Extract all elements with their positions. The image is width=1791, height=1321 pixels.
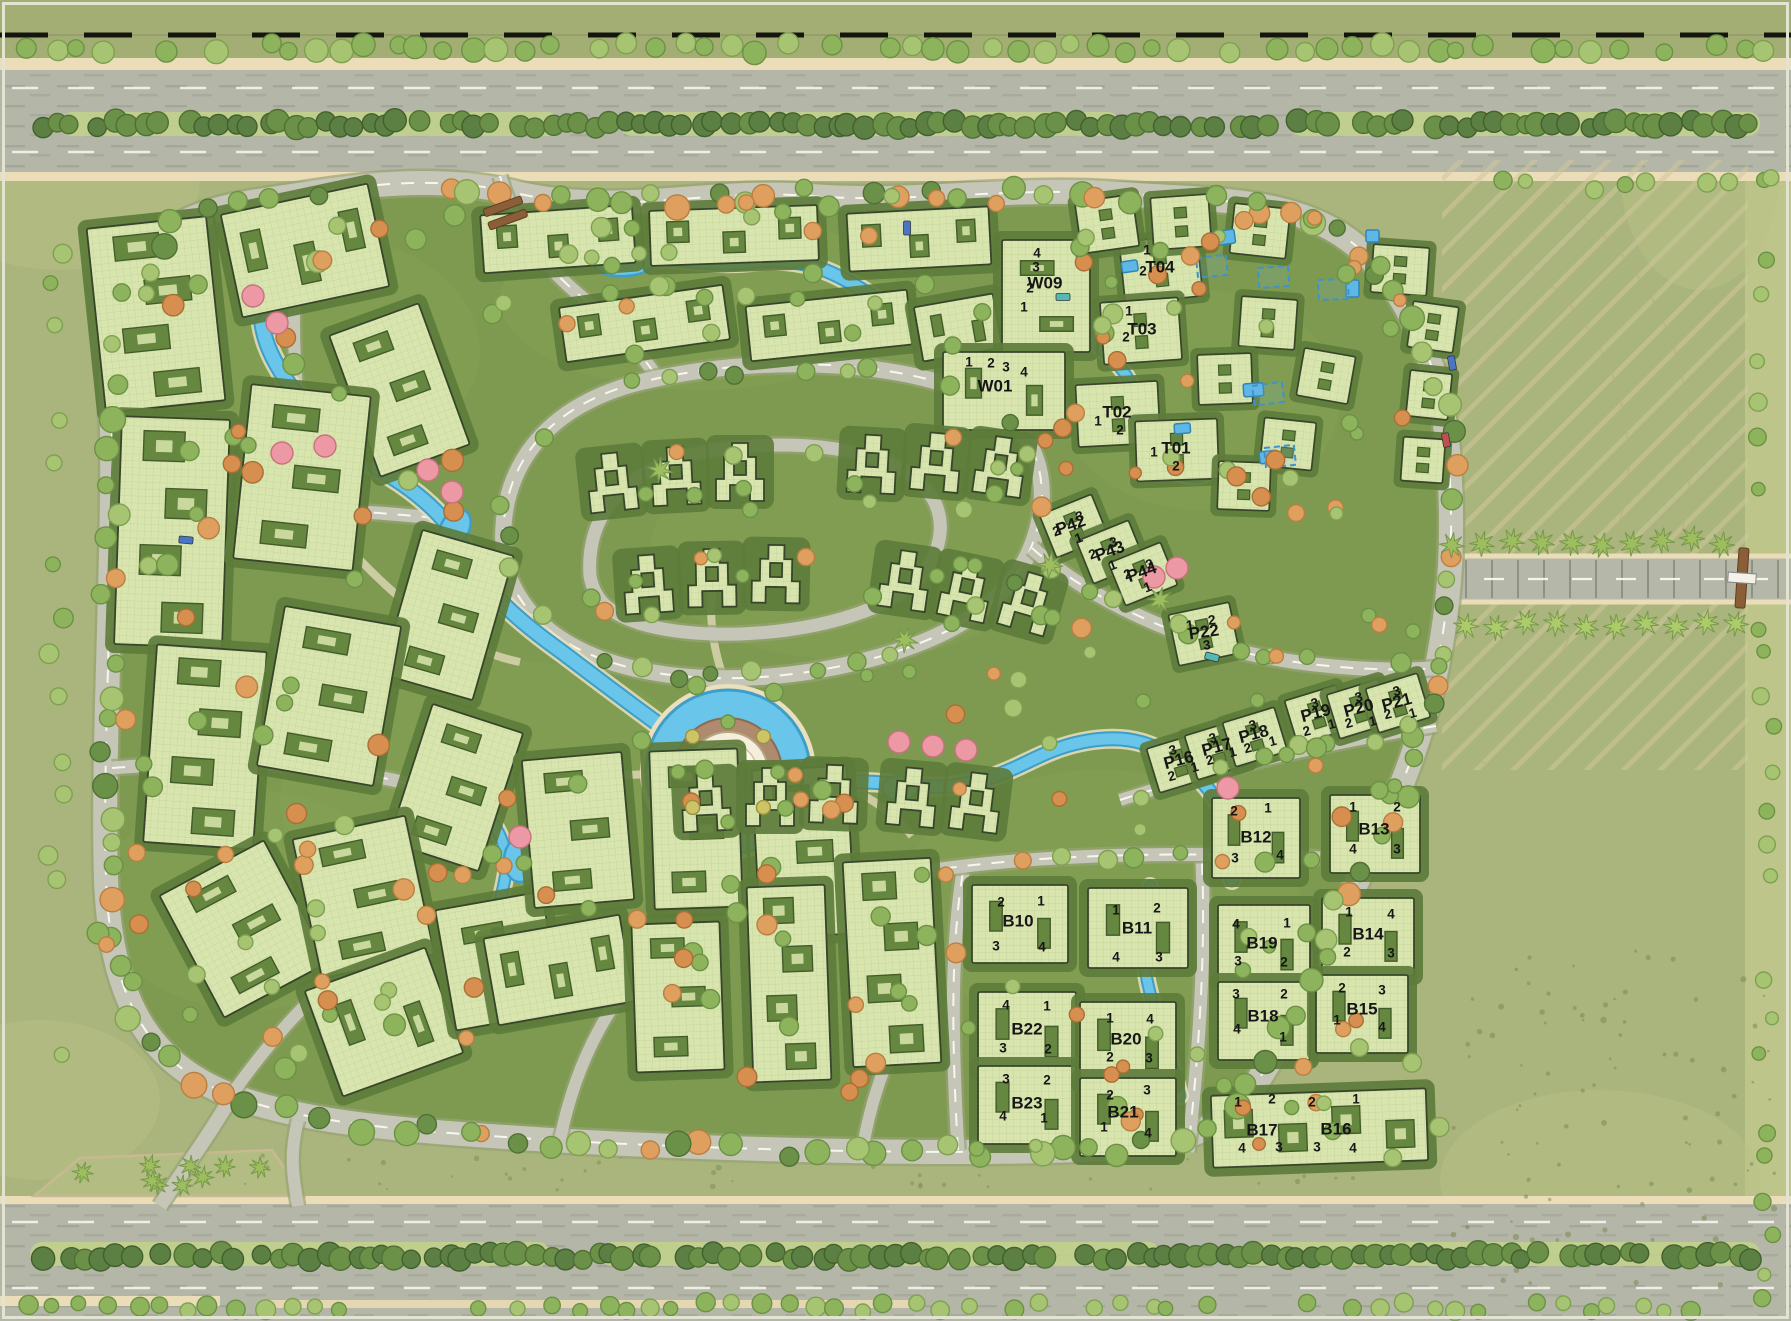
unit-number: 3 xyxy=(1143,1083,1151,1098)
unit-number: 4 xyxy=(1238,1141,1246,1156)
unit-number: 1 xyxy=(1112,903,1120,918)
svg-text:T01: T01 xyxy=(1161,438,1190,457)
unit-number: 2 xyxy=(1338,981,1346,996)
svg-text:B23: B23 xyxy=(1011,1093,1042,1112)
svg-text:T02: T02 xyxy=(1102,402,1131,421)
unit-number: 1 xyxy=(1333,1013,1341,1028)
unit-number: 1 xyxy=(1349,800,1357,815)
unit-number: 4 xyxy=(1144,1126,1152,1141)
unit-number: 2 xyxy=(1280,955,1288,970)
unit-number: 1 xyxy=(1043,999,1051,1014)
svg-text:B18: B18 xyxy=(1247,1006,1278,1025)
unit-number: 1 xyxy=(965,355,973,370)
townhouse-a-block xyxy=(938,761,1015,843)
building-footprint xyxy=(737,875,840,1091)
unit-number: 2 xyxy=(1308,1095,1316,1110)
unit-number: 1 xyxy=(1037,894,1045,909)
unit-number: 2 xyxy=(1268,1092,1276,1107)
unit-number: 2 xyxy=(1043,1073,1051,1088)
svg-text:B14: B14 xyxy=(1352,924,1384,943)
svg-text:T04: T04 xyxy=(1145,257,1175,276)
unit-number: 2 xyxy=(1393,800,1401,815)
planned-plot-outline xyxy=(1258,266,1289,288)
unit-number: 1 xyxy=(1234,1095,1242,1110)
unit-number: 3 xyxy=(1313,1140,1321,1155)
site-plan-svg: W094321W011234T0412T0312T0212T0112P42321… xyxy=(0,0,1791,1321)
unit-number: 1 xyxy=(1345,905,1353,920)
townhouse-a-block xyxy=(741,536,810,611)
planned-plot-outline xyxy=(1196,255,1228,278)
car-icon xyxy=(179,536,194,544)
svg-text:B16: B16 xyxy=(1320,1119,1351,1138)
unit-number: 3 xyxy=(1393,842,1401,857)
unit-number: 4 xyxy=(1232,917,1240,932)
svg-text:B19: B19 xyxy=(1246,933,1277,952)
svg-text:W01: W01 xyxy=(978,376,1013,395)
unit-number: 4 xyxy=(1349,1141,1357,1156)
car-icon xyxy=(1056,294,1070,301)
unit-number: 2 xyxy=(1106,1088,1114,1103)
townhouse-a-block xyxy=(799,756,870,832)
villa-footprint xyxy=(1190,346,1260,412)
car-icon xyxy=(904,221,911,235)
unit-number: 4 xyxy=(1038,940,1046,955)
unit-number: 4 xyxy=(1387,907,1395,922)
unit-number: 3 xyxy=(992,939,1000,954)
townhouse-a-block xyxy=(574,442,649,523)
unit-number: 4 xyxy=(1033,246,1041,261)
svg-text:B20: B20 xyxy=(1110,1029,1141,1048)
unit-number: 4 xyxy=(1378,1020,1386,1035)
unit-number: 2 xyxy=(997,895,1005,910)
unit-number: 2 xyxy=(1153,901,1161,916)
unit-number: 1 xyxy=(1100,1120,1108,1135)
unit-number: 3 xyxy=(1002,1072,1010,1087)
unit-number: 4 xyxy=(1002,998,1010,1013)
unit-number: 2 xyxy=(1230,804,1238,819)
unit-number: 4 xyxy=(1276,848,1284,863)
villa-footprint xyxy=(1288,340,1364,413)
swimming-pool xyxy=(1174,423,1191,434)
unit-number: 1 xyxy=(1106,1011,1114,1026)
svg-text:B12: B12 xyxy=(1240,827,1271,846)
unit-number: 2 xyxy=(1116,423,1124,438)
svg-text:B17: B17 xyxy=(1246,1120,1277,1139)
unit-number: 4 xyxy=(1020,365,1028,380)
unit-number: 2 xyxy=(1122,330,1130,345)
unit-number: 3 xyxy=(1002,360,1010,375)
townhouse-a-block xyxy=(899,422,973,502)
unit-number: 3 xyxy=(1231,851,1239,866)
unit-number: 3 xyxy=(1155,950,1163,965)
unit-number: 3 xyxy=(1145,1051,1153,1066)
townhouse-a-block xyxy=(706,435,774,509)
unit-number: 4 xyxy=(1146,1012,1154,1027)
building-footprint xyxy=(833,848,951,1076)
unit-number: 2 xyxy=(1106,1050,1114,1065)
unit-number: 1 xyxy=(1094,414,1102,429)
unit-number: 2 xyxy=(1343,945,1351,960)
svg-text:B15: B15 xyxy=(1346,999,1377,1018)
svg-text:B11: B11 xyxy=(1122,918,1152,937)
unit-number: 1 xyxy=(1264,801,1272,816)
unit-number: 4 xyxy=(999,1109,1007,1124)
svg-text:B22: B22 xyxy=(1011,1019,1042,1038)
unit-number: 3 xyxy=(999,1041,1007,1056)
unit-number: 2 xyxy=(987,356,995,371)
unit-number: 2 xyxy=(1280,987,1288,1002)
unit-number: 3 xyxy=(1378,983,1386,998)
svg-text:T03: T03 xyxy=(1127,319,1156,338)
unit-number: 2 xyxy=(1172,459,1180,474)
unit-number: 2 xyxy=(1026,281,1034,296)
svg-text:B10: B10 xyxy=(1002,911,1033,930)
unit-number: 1 xyxy=(1283,916,1291,931)
unit-number: 2 xyxy=(1044,1042,1052,1057)
unit-number: 3 xyxy=(1032,260,1040,275)
unit-number: 2 xyxy=(1139,264,1147,279)
svg-text:B21: B21 xyxy=(1107,1102,1138,1121)
swimming-pool xyxy=(1121,260,1138,273)
townhouse-a-block xyxy=(836,425,908,502)
planned-plot-outline xyxy=(1252,382,1284,406)
unit-number: 1 xyxy=(1143,243,1151,258)
unit-number: 3 xyxy=(1234,954,1242,969)
townhouse-a-block xyxy=(875,757,949,837)
unit-number: 1 xyxy=(1279,1030,1287,1045)
unit-number: 3 xyxy=(1387,946,1395,961)
unit-number: 4 xyxy=(1349,842,1357,857)
unit-number: 4 xyxy=(1233,1022,1241,1037)
unit-number: 1 xyxy=(1040,1111,1048,1126)
unit-number: 1 xyxy=(1125,304,1133,319)
unit-number: 1 xyxy=(1150,445,1158,460)
unit-number: 3 xyxy=(1275,1140,1283,1155)
building-footprint xyxy=(512,742,644,918)
unit-number: 3 xyxy=(1232,987,1240,1002)
unit-number: 1 xyxy=(1020,300,1028,315)
unit-number: 1 xyxy=(1352,1092,1360,1107)
master-plan-canvas: W094321W011234T0412T0312T0212T0112P42321… xyxy=(0,0,1791,1321)
unit-number: 4 xyxy=(1112,950,1120,965)
swimming-pool xyxy=(1366,230,1379,242)
svg-text:B13: B13 xyxy=(1358,819,1389,838)
